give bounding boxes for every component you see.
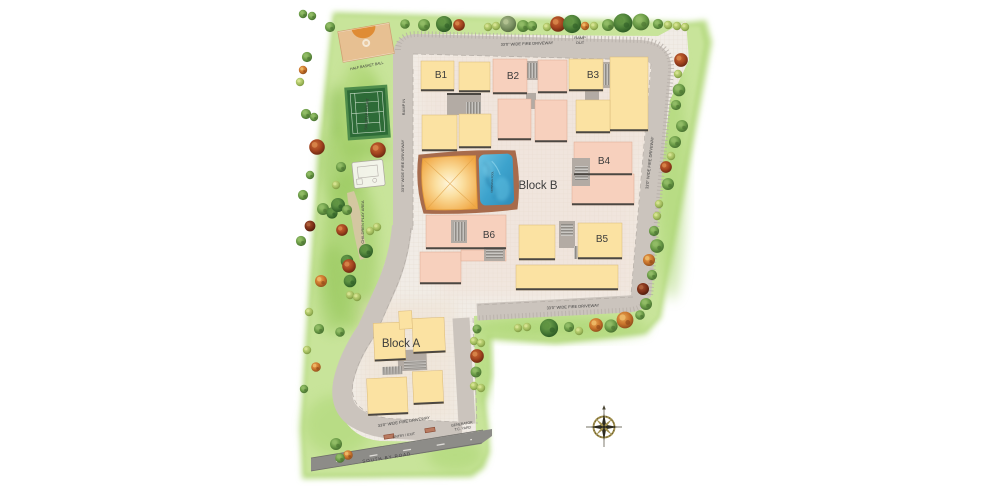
svg-text:Block A: Block A [382,338,421,350]
svg-text:B5: B5 [596,234,609,245]
svg-text:B4: B4 [598,156,611,167]
svg-text:Block B: Block B [519,180,558,192]
svg-text:33'0" WIDE FIRE DRIVEWAY: 33'0" WIDE FIRE DRIVEWAY [400,139,405,192]
svg-text:B1: B1 [435,70,448,81]
svg-text:B2: B2 [507,71,520,82]
svg-text:SWIMMING POOL: SWIMMING POOL [490,170,495,192]
svg-text:B6: B6 [483,230,496,241]
svg-text:B3: B3 [587,70,600,81]
svg-text:RAMP IN: RAMP IN [401,99,406,116]
svg-text:CHILDREN PLAY AREA: CHILDREN PLAY AREA [360,200,365,244]
svg-text:OUT: OUT [576,40,585,45]
